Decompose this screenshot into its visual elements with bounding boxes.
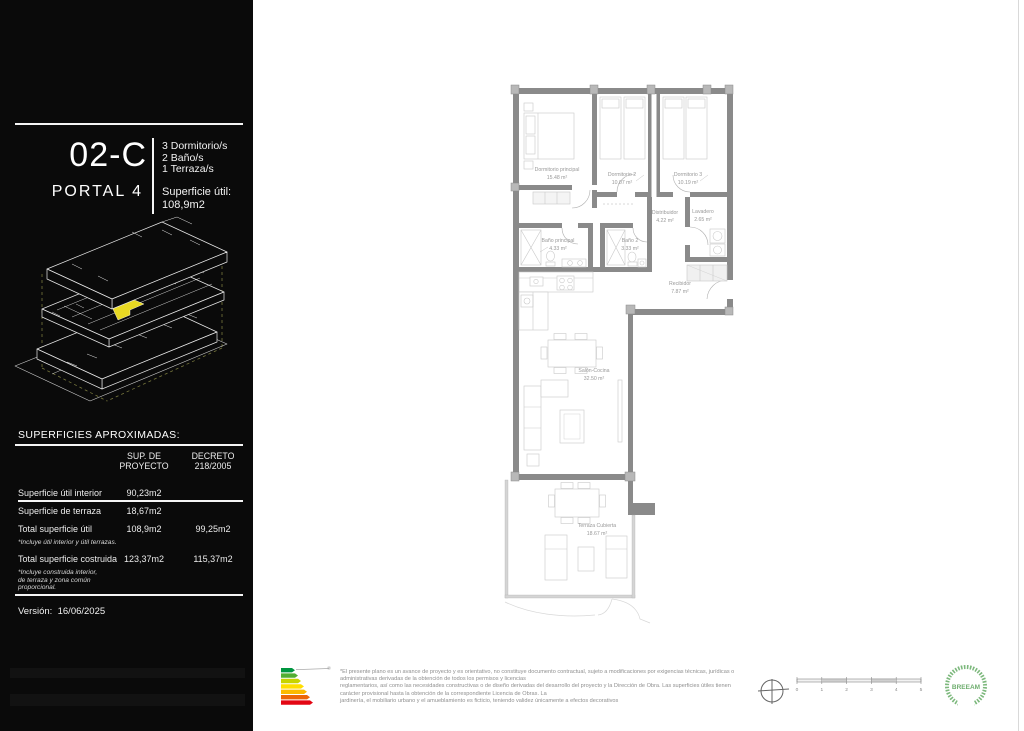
svg-text:4.33 m²: 4.33 m² xyxy=(549,246,567,252)
energy-rating-icon xyxy=(281,666,333,710)
room-label-distribuidor: Distribuidor xyxy=(652,210,679,216)
sheet-frame-line xyxy=(1018,0,1019,731)
col-decreto: DECRETO 218/2005 xyxy=(184,452,242,471)
svg-text:4: 4 xyxy=(895,687,898,693)
svg-text:7.87 m²: 7.87 m² xyxy=(671,289,689,295)
surfaces-title: SUPERFICIES APROXIMADAS: xyxy=(18,429,180,441)
plan-sheet: 02-C PORTAL 4 3 Dormitorio/s 2 Baño/s 1 … xyxy=(0,0,1024,731)
disclaimer-text: *El presente plano es un avance de proye… xyxy=(340,669,745,705)
unit-features: 3 Dormitorio/s 2 Baño/s 1 Terraza/s xyxy=(162,141,227,176)
room-label-dormitorio-principal: Dormitorio principal xyxy=(535,167,580,173)
table-row: Superficie de terraza 18,67m2 xyxy=(18,502,243,520)
room-label-recibidor: Recibidor xyxy=(669,281,691,287)
svg-text:18.67 m²: 18.67 m² xyxy=(587,531,608,537)
svg-text:3: 3 xyxy=(870,687,873,693)
table-note: *Incluye útil interior y útil terrazas. xyxy=(18,539,243,547)
compass-icon xyxy=(757,676,791,708)
svg-text:1: 1 xyxy=(820,687,823,693)
table-header: SUP. DE PROYECTO DECRETO 218/2005 xyxy=(18,450,243,474)
svg-text:BREEAM: BREEAM xyxy=(952,684,980,691)
svg-text:10.19 m²: 10.19 m² xyxy=(678,180,699,186)
room-label-bano-principal: Baño principal xyxy=(542,238,575,244)
room-label-lavadero: Lavadero xyxy=(692,209,714,215)
divider xyxy=(15,594,243,596)
feature-terraces: 1 Terraza/s xyxy=(162,164,227,176)
surfaces-table: SUP. DE PROYECTO DECRETO 218/2005 Superf… xyxy=(18,450,243,592)
breeam-logo: BREEAM xyxy=(941,662,991,712)
version-line: Versión: 16/06/2025 xyxy=(18,606,105,617)
room-label-bano-2: Baño 2 xyxy=(622,238,639,244)
portal-label: PORTAL 4 xyxy=(0,183,143,201)
room-label-dormitorio-3: Dormitorio 3 xyxy=(674,172,702,178)
room-label-terraza: Terraza Cubierta xyxy=(578,523,616,529)
table-note: *Incluye construida interior, de terraza… xyxy=(18,569,243,592)
svg-text:4.22 m²: 4.22 m² xyxy=(656,218,674,224)
landscaping xyxy=(505,599,650,623)
table-row: Superficie útil interior 90,23m2 xyxy=(18,484,243,502)
decorative-strip xyxy=(10,668,245,678)
svg-text:2.65 m²: 2.65 m² xyxy=(694,217,712,223)
svg-text:3.33 m²: 3.33 m² xyxy=(621,246,639,252)
superficie-util: Superficie útil: 108,9m2 xyxy=(162,186,231,212)
table-row: Total superficie útil 108,9m2 99,25m2 xyxy=(18,520,243,538)
building-axonometric xyxy=(12,216,247,426)
svg-text:2: 2 xyxy=(845,687,848,693)
svg-text:32.50 m²: 32.50 m² xyxy=(584,376,605,382)
table-row: Total superficie costruida 123,37m2 115,… xyxy=(18,550,243,568)
divider xyxy=(152,138,154,214)
col-proyecto: SUP. DE PROYECTO xyxy=(111,452,177,471)
svg-text:0: 0 xyxy=(796,687,799,693)
room-label-dormitorio-2: Dormitorio 2 xyxy=(608,172,636,178)
unit-code: 02-C xyxy=(0,136,147,175)
svg-text:10.07 m²: 10.07 m² xyxy=(612,180,633,186)
sidebar: 02-C PORTAL 4 3 Dormitorio/s 2 Baño/s 1 … xyxy=(0,0,253,731)
room-label-salon-cocina: Salón-Cocina xyxy=(578,368,609,374)
feature-bedrooms: 3 Dormitorio/s xyxy=(162,141,227,153)
floor-plan: Dormitorio principal 15.48 m² Dormitorio… xyxy=(500,83,740,633)
svg-text:15.48 m²: 15.48 m² xyxy=(547,175,568,181)
divider xyxy=(15,123,243,125)
divider xyxy=(15,444,243,446)
svg-text:5: 5 xyxy=(920,687,923,693)
scale-bar: 0 1 2 3 4 5 xyxy=(795,672,927,694)
decorative-strip xyxy=(10,694,245,706)
